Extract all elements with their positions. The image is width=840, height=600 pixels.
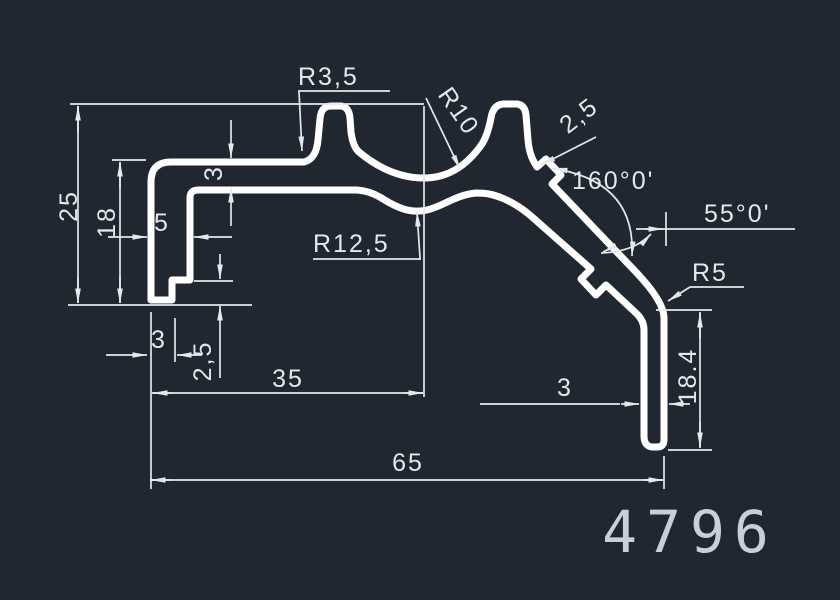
dim-label-184[interactable]: 18.4 [674,348,702,405]
dim-label-25[interactable]: 25 [55,190,83,222]
dim-label-foot-3[interactable]: 3 [151,326,167,354]
drawing-number[interactable]: 4796 [602,498,778,566]
cad-canvas: 25 18 3 5 2,5 3 35 [0,0,840,600]
dim-label-18[interactable]: 18 [93,206,121,238]
dim-label-leg-3[interactable]: 3 [557,374,573,402]
dim-label-r5[interactable]: R5 [692,259,728,287]
dim-label-r125[interactable]: R12,5 [313,230,390,258]
dim-label-r35[interactable]: R3,5 [298,63,359,91]
cad-drawing: 25 18 3 5 2,5 3 35 [0,0,840,600]
dim-label-wall-5[interactable]: 5 [154,209,170,237]
dim-label-160[interactable]: 160°0' [572,167,654,195]
dim-label-flange-3[interactable]: 3 [200,165,228,181]
dim-label-35[interactable]: 35 [272,365,304,393]
dim-label-55[interactable]: 55°0' [704,200,770,228]
dim-label-foot-step[interactable]: 2,5 [189,341,217,382]
dim-label-65[interactable]: 65 [392,449,424,477]
